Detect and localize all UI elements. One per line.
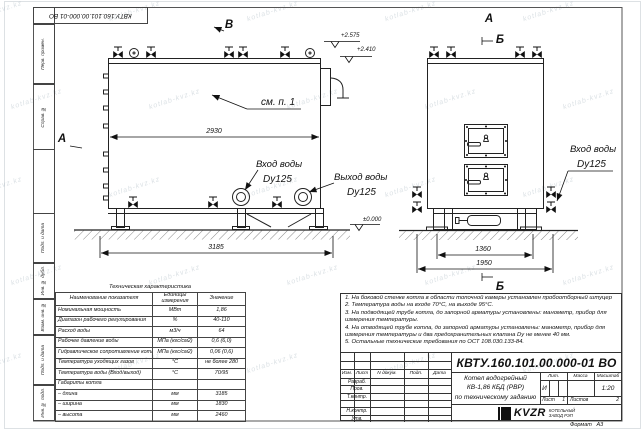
- sheet-value: 1: [562, 397, 565, 403]
- cell-unit: м3/ч: [153, 327, 198, 338]
- elevation-2575: +2.575: [341, 33, 360, 39]
- inlet-dn-label: Dy125: [263, 174, 292, 185]
- side-valve-icon: [412, 202, 422, 213]
- table-row: – длинамм3185: [56, 390, 246, 401]
- cell-name: Номинальная мощность: [56, 306, 153, 317]
- table-row: Гидравлическое сопротивление котлаМПа (к…: [56, 348, 246, 359]
- door-handle: [468, 143, 481, 147]
- table-row: Рабочее давление водыМПа (кгс/см2)0,6 (6…: [56, 337, 246, 348]
- product-name-line: КВ-1,86 КБД (РВР): [467, 383, 524, 393]
- spec-table: Наименование показателя Единицы измерени…: [55, 292, 246, 422]
- cell-unit: МВт: [153, 306, 198, 317]
- front-view: [399, 47, 578, 240]
- door-handle: [468, 181, 481, 185]
- kvzr-logo-mark: [498, 407, 511, 420]
- col-header: Наименование показателя: [56, 293, 153, 306]
- cell-unit: [153, 379, 198, 390]
- cell-name: Рабочее давление воды: [56, 337, 153, 348]
- burner-unit: [468, 216, 501, 226]
- section-marker-b-bottom: Б: [496, 281, 504, 293]
- elevation-0000: ±0.000: [363, 217, 382, 223]
- lit-value: И: [540, 380, 549, 396]
- door-latch-icon: [484, 173, 489, 179]
- air-valve-icon: [146, 47, 156, 58]
- scale-label: Масштаб: [594, 372, 622, 380]
- spec-table-block: Техническая характеристика Наименование …: [55, 283, 245, 422]
- flue-duct: [321, 69, 331, 106]
- note-line: 3. На подводящей трубе котла, до запорно…: [345, 310, 617, 317]
- cell-unit: °С: [153, 369, 198, 380]
- cell-name: Температура уходящих газов: [56, 358, 153, 369]
- company-subtitle: КОТЕЛЬНЫЙ ЗАВОД РЭП: [549, 408, 575, 418]
- cell-unit: °С: [153, 358, 198, 369]
- sheets-label: Листов: [570, 397, 588, 403]
- boiler-body-front: [428, 59, 544, 209]
- table-row: Температура уходящих газов°Сне более 280: [56, 358, 246, 369]
- door-latch-icon: [484, 135, 489, 141]
- cell-unit: мм: [153, 400, 198, 411]
- lit-label: Лит.: [540, 372, 567, 380]
- stamp-label: Взам. инв. №: [41, 302, 46, 331]
- mass-label: Масса: [567, 372, 594, 380]
- table-row: Диапазон рабочего регулирования%40-110: [56, 316, 246, 327]
- grid-header: Лист: [354, 369, 370, 378]
- drain-valve-icon: [272, 197, 282, 208]
- support-frame: [434, 209, 537, 230]
- note-line: измерения температуры и два предохраните…: [345, 332, 617, 339]
- view-marker-a-top: А: [484, 13, 493, 25]
- cell-value: 3185: [198, 390, 246, 401]
- cell-value: не более 280: [198, 358, 246, 369]
- outlet-label: Выход воды: [334, 172, 387, 183]
- side-valve-icon: [546, 202, 556, 213]
- side-view: [74, 47, 350, 240]
- sheets-value: 2: [616, 397, 619, 403]
- cell-name: Гидравлическое сопротивление котла: [56, 348, 153, 359]
- role-label: Т.контр.: [340, 393, 372, 400]
- air-valve-icon: [429, 47, 439, 58]
- inlet-label-front: Вход воды: [570, 144, 616, 155]
- drawing-sheet: kotlab-kvz.kzkotlab-kvz.kzkotlab-kvz.kzk…: [0, 0, 644, 430]
- cell-value: 1,86: [198, 306, 246, 317]
- cell-name: Расход воды: [56, 327, 153, 338]
- dim-2930: 2930: [205, 128, 222, 135]
- cell-value: [198, 379, 246, 390]
- format-label: Формат: [570, 422, 592, 428]
- air-valve-icon: [113, 47, 123, 58]
- product-name: Котел водогрейный КВ-1,86 КБД (РВР) по т…: [451, 372, 540, 404]
- company-logo-block: KVZR КОТЕЛЬНЫЙ ЗАВОД РЭП: [451, 404, 622, 422]
- role-label: Пров.: [340, 385, 372, 393]
- cell-name: Температура воды (Вход/выход): [56, 369, 153, 380]
- sheet-cell: Лист 1: [540, 396, 567, 404]
- inlet-dn-label-front: Dy125: [577, 159, 606, 170]
- format-note: Формат А3: [570, 422, 603, 428]
- cell-name: – высота: [56, 411, 153, 422]
- air-valve-icon: [532, 47, 542, 58]
- product-name-line: по техническому заданию: [455, 393, 536, 403]
- dim-3185: 3185: [208, 244, 224, 251]
- air-valve-icon: [238, 47, 248, 58]
- cell-value: 64: [198, 327, 246, 338]
- stamp-box: Инв. № дубл.: [33, 263, 54, 299]
- cell-unit: МПа (кгс/см2): [153, 337, 198, 348]
- inlet-label: Вход воды: [256, 159, 302, 170]
- product-name-line: Котел водогрейный: [464, 374, 527, 384]
- air-valve-icon: [446, 47, 456, 58]
- stamp-label: Инв. № подл.: [41, 388, 46, 418]
- role-label: Утв.: [340, 415, 372, 422]
- section-marker-a-left: А: [57, 133, 66, 145]
- table-row: Номинальная мощностьМВт1,86: [56, 306, 246, 317]
- elevation-2410: +2.410: [357, 47, 376, 53]
- note-line: 4. На отводящей трубе котла, до запорной…: [345, 325, 617, 332]
- drain-valve-icon: [208, 197, 218, 208]
- ground-hatch: [399, 231, 578, 240]
- company-subtitle-line: ЗАВОД РЭП: [549, 413, 575, 418]
- stamp-box: Инв. № подл.: [33, 385, 54, 421]
- table-row: – высотамм2460: [56, 411, 246, 422]
- spec-table-title: Техническая характеристика: [55, 283, 245, 292]
- stamp-box: Подп. и дата: [33, 335, 54, 385]
- cell-value: 1830: [198, 400, 246, 411]
- stamp-box: Перв. примен.: [33, 24, 54, 84]
- role-label: Разраб.: [340, 378, 372, 385]
- technical-notes: 1. На боковой стенке котла в области топ…: [345, 295, 617, 347]
- stamp-box: Справ. №: [33, 84, 54, 150]
- cell-value: 0,06 (0,6): [198, 348, 246, 359]
- grid-header: N докум.: [370, 369, 404, 378]
- table-row: Габариты котла: [56, 379, 246, 390]
- air-valve-icon: [224, 47, 234, 58]
- col-header: Единицы измерения: [153, 293, 198, 306]
- cell-unit: мм: [153, 390, 198, 401]
- drain-valve-icon: [128, 197, 138, 208]
- lifting-lug: [306, 49, 315, 58]
- format-value: А3: [596, 422, 603, 428]
- air-valve-icon: [280, 47, 290, 58]
- titleblock-doc-number: КВТУ.160.101.00.000-01 ВО: [451, 353, 622, 372]
- sheet-label: Лист: [542, 397, 555, 403]
- cell-unit: МПа (кгс/см2): [153, 348, 198, 359]
- grid-header: Дата: [428, 369, 451, 378]
- note-line: 1. На боковой стенке котла в области топ…: [345, 295, 617, 302]
- cell-value: 40-110: [198, 316, 246, 327]
- cell-name: Габариты котла: [56, 379, 153, 390]
- ground-hatch: [74, 231, 350, 240]
- table-header-row: Наименование показателя Единицы измерени…: [56, 293, 246, 306]
- section-marker-b-top: Б: [496, 34, 504, 46]
- sheets-cell: Листов 2: [567, 396, 622, 404]
- see-note-label: см. п. 1: [261, 97, 295, 108]
- side-valve-icon: [412, 187, 422, 198]
- note-line: 5. Остальные технические требования по О…: [345, 339, 617, 346]
- stamp-box: Подп. и дата: [33, 213, 54, 263]
- cell-value: 70/95: [198, 369, 246, 380]
- table-row: Расход водым3/ч64: [56, 327, 246, 338]
- dim-1360: 1360: [475, 246, 491, 253]
- cell-name: – ширина: [56, 400, 153, 411]
- grid-header: Подп.: [404, 369, 428, 378]
- kvzr-logo-text: KVZR: [514, 407, 546, 419]
- table-row: – ширинамм1830: [56, 400, 246, 411]
- cell-value: 0,6 (6,0): [198, 337, 246, 348]
- stamp-label: Подп. и дата: [41, 223, 46, 253]
- scale-value: 1:20: [594, 380, 622, 396]
- water-inlet-nozzle: [233, 189, 250, 206]
- grid-header: Изм.: [340, 369, 354, 378]
- note-line: 2. Температура воды на входе 70°С, на вы…: [345, 302, 617, 309]
- frame-stamp-strip: Перв. примен. Справ. № Подп. и дата Инв.…: [33, 7, 55, 421]
- note-line: измерения температуры.: [345, 317, 617, 324]
- cell-unit: %: [153, 316, 198, 327]
- outlet-dn-label: Dy125: [347, 187, 376, 198]
- table-row: Температура воды (Вход/выход)°С70/95: [56, 369, 246, 380]
- side-valve-icon: [546, 187, 556, 198]
- cell-name: – длина: [56, 390, 153, 401]
- water-outlet-nozzle: [295, 189, 312, 206]
- stamp-label: Перв. примен.: [41, 38, 46, 70]
- stamp-label: Справ. №: [41, 106, 46, 128]
- role-label: [340, 400, 372, 407]
- stamp-label: Подп. и дата: [41, 345, 46, 375]
- doc-number-rotated: КВТУ.160.101.00.000-01 ВО: [49, 12, 132, 19]
- stamp-box: Взам. инв. №: [33, 299, 54, 335]
- cell-name: Диапазон рабочего регулирования: [56, 316, 153, 327]
- title-block: КВТУ.160.101.00.000-01 ВО Изм. Лист N до…: [340, 352, 622, 421]
- role-label: Н.контр.: [340, 407, 372, 415]
- col-header: Значение: [198, 293, 246, 306]
- dim-1950: 1950: [476, 260, 492, 267]
- cell-value: 2460: [198, 411, 246, 422]
- view-marker-v: В: [225, 19, 233, 31]
- lifting-lug: [130, 49, 139, 58]
- air-valve-icon: [515, 47, 525, 58]
- stamp-label: Инв. № дубл.: [41, 266, 46, 295]
- cell-unit: мм: [153, 411, 198, 422]
- doc-number-rotated-box: КВТУ.160.101.00.000-01 ВО: [33, 7, 148, 24]
